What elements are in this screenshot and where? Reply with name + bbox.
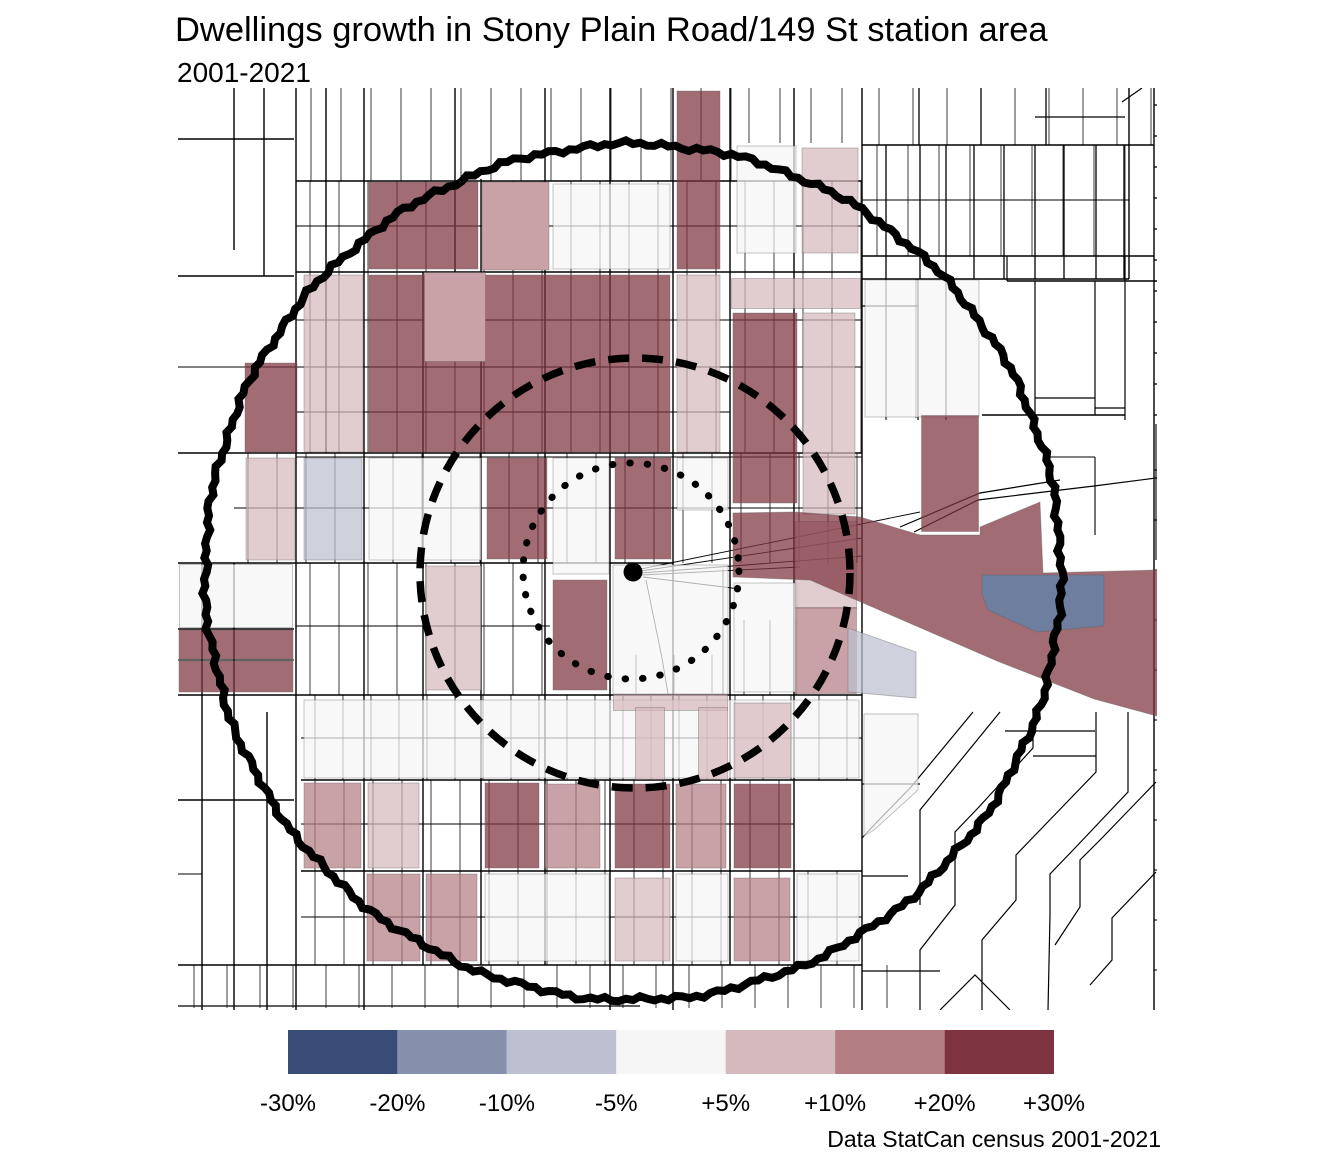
svg-text:Data StatCan census 2001-2021: Data StatCan census 2001-2021 <box>827 1126 1161 1152</box>
svg-text:+10%: +10% <box>804 1090 866 1117</box>
svg-text:2001-2021: 2001-2021 <box>177 57 311 88</box>
svg-text:-10%: -10% <box>479 1090 535 1117</box>
svg-text:Dwellings growth in Stony Plai: Dwellings growth in Stony Plain Road/149… <box>175 11 1048 49</box>
svg-text:-30%: -30% <box>260 1090 316 1117</box>
svg-text:-20%: -20% <box>369 1090 425 1117</box>
svg-text:-5%: -5% <box>595 1090 638 1117</box>
svg-text:+5%: +5% <box>701 1090 750 1117</box>
svg-text:+20%: +20% <box>914 1090 976 1117</box>
svg-text:+30%: +30% <box>1023 1090 1085 1117</box>
